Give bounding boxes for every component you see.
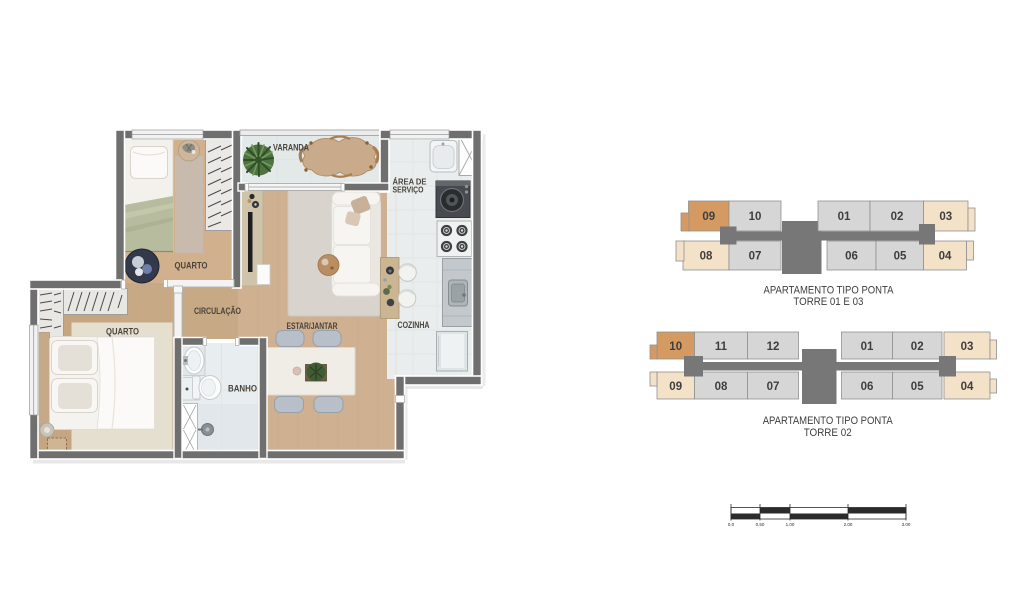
svg-text:05: 05	[894, 251, 907, 263]
svg-text:QUARTO: QUARTO	[175, 261, 208, 271]
svg-text:BANHO: BANHO	[228, 384, 257, 394]
svg-text:06: 06	[845, 251, 858, 263]
svg-text:TORRE 01 E 03: TORRE 01 E 03	[793, 296, 863, 308]
svg-text:05: 05	[911, 381, 924, 393]
svg-text:03: 03	[939, 211, 952, 223]
svg-text:3.00: 3.00	[902, 522, 911, 527]
svg-text:APARTAMENTO TIPO PONTA: APARTAMENTO TIPO PONTA	[764, 285, 895, 297]
svg-text:ESTAR/JANTAR: ESTAR/JANTAR	[287, 321, 338, 331]
svg-text:04: 04	[939, 251, 952, 263]
svg-text:0.0: 0.0	[728, 522, 735, 527]
svg-text:APARTAMENTO TIPO PONTA: APARTAMENTO TIPO PONTA	[763, 415, 894, 427]
svg-text:TORRE 02: TORRE 02	[804, 427, 852, 439]
svg-text:COZINHA: COZINHA	[398, 320, 430, 330]
svg-text:0.50: 0.50	[756, 522, 765, 527]
svg-text:08: 08	[700, 251, 713, 263]
svg-text:03: 03	[961, 341, 974, 353]
svg-text:SERVIÇO: SERVIÇO	[393, 185, 424, 195]
svg-text:07: 07	[767, 381, 780, 393]
svg-text:06: 06	[861, 381, 874, 393]
svg-text:2.00: 2.00	[844, 522, 853, 527]
svg-text:02: 02	[891, 211, 904, 223]
svg-text:CIRCULAÇÃO: CIRCULAÇÃO	[194, 306, 241, 316]
svg-text:1.00: 1.00	[786, 522, 795, 527]
svg-text:VARANDA: VARANDA	[273, 143, 309, 153]
svg-text:10: 10	[669, 341, 682, 353]
svg-text:12: 12	[767, 341, 780, 353]
svg-text:04: 04	[961, 381, 974, 393]
svg-text:10: 10	[749, 211, 762, 223]
svg-text:01: 01	[861, 341, 874, 353]
svg-text:09: 09	[702, 211, 715, 223]
svg-text:02: 02	[911, 341, 924, 353]
svg-text:QUARTO: QUARTO	[106, 327, 139, 337]
svg-text:09: 09	[669, 381, 682, 393]
svg-text:01: 01	[838, 211, 851, 223]
svg-text:08: 08	[715, 381, 728, 393]
svg-text:11: 11	[715, 341, 728, 353]
svg-text:07: 07	[749, 251, 762, 263]
